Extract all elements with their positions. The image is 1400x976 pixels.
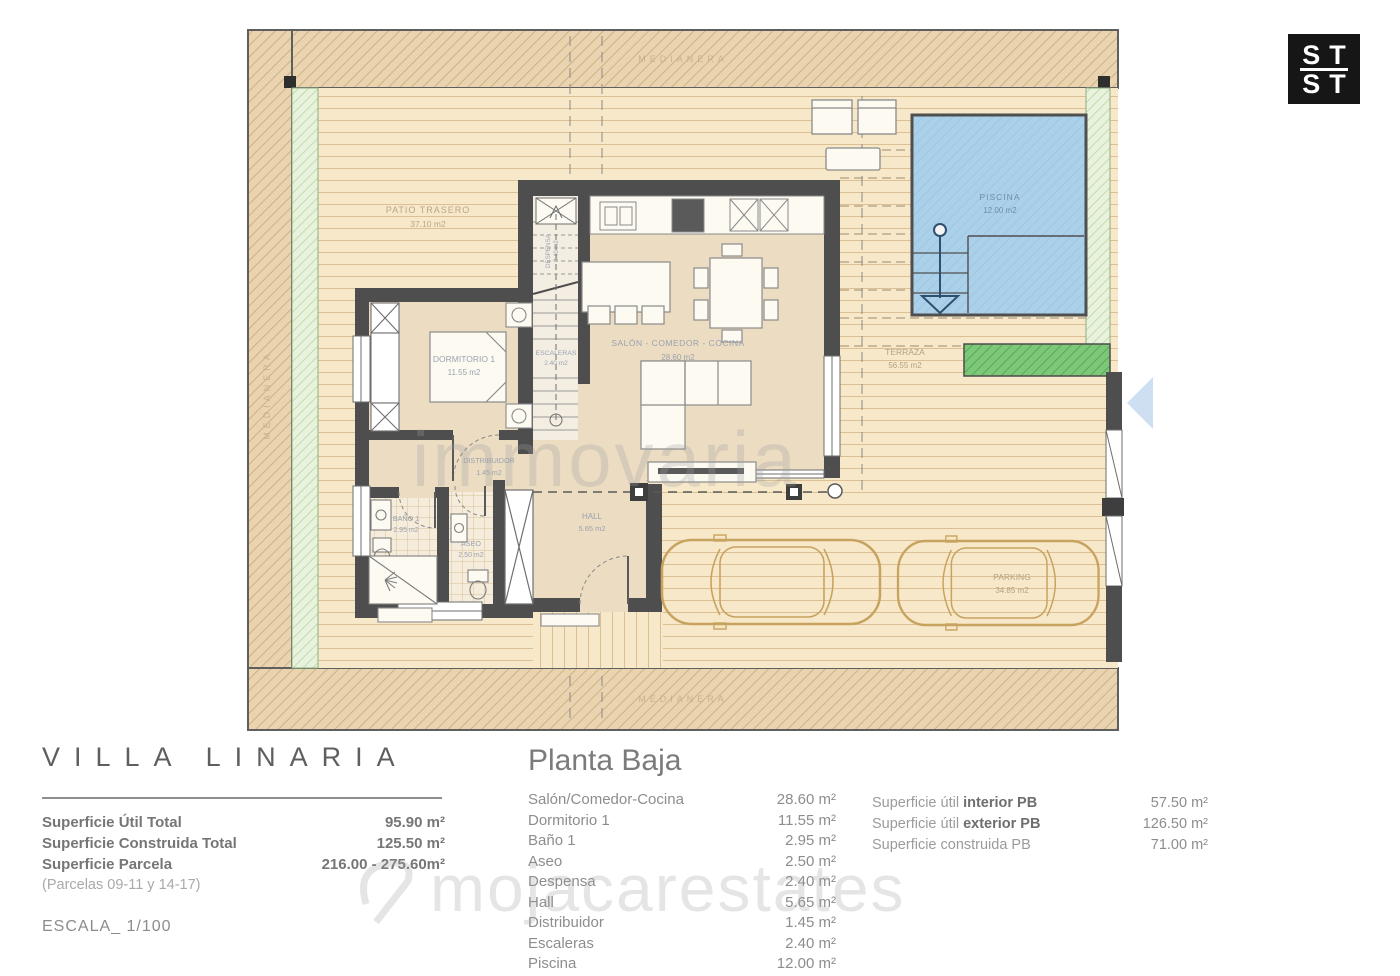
pool: PISCINA 12.00 m2 [912,115,1086,315]
room-area-row: Baño 12.95 m² [528,831,836,852]
room-area-aseo: 2.50 m2 [458,552,483,559]
room-label-bano: BAÑO 1 [393,514,419,523]
kitchen-island [582,262,670,324]
room-area-distribuidor: 1.45 m2 [476,470,501,477]
title-block-rows: Superficie Útil Total95.90 m² Superficie… [42,812,445,895]
room-area-hall: 5.65 m2 [578,524,605,533]
floor-plan-page: PISCINA 12.00 m2 [0,0,1400,976]
room-area-bano: 2.95 m2 [393,527,418,534]
room-area-row: Distribuidor1.45 m² [528,913,836,934]
title-block: VILLA LINARIA [42,742,450,773]
svg-text:MEDIANERA: MEDIANERA [638,54,728,64]
room-label-aseo: ASEO [461,539,481,548]
room-label-piscina: PISCINA [979,192,1020,202]
stove-icon [672,199,704,232]
svg-text:MEDIANERA: MEDIANERA [638,694,728,704]
room-label-parking: PARKING [993,572,1031,582]
room-area-row: Dormitorio 111.55 m² [528,811,836,832]
room-area-escalera: 2.40 m2 [544,360,568,367]
wardrobe [371,303,399,431]
parcelas-note: (Parcelas 09-11 y 14-17) [42,875,445,895]
room-label-despensa: DESPENSA [545,233,552,268]
room-area-row: Aseo2.50 m² [528,852,836,873]
room-area-parking: 34.85 m2 [995,586,1029,595]
right-hedge-strip [1086,88,1110,344]
summary-row: Superficie construida PB 71.00 m² [872,835,1208,856]
room-area-row: Salón/Comedor-Cocina28.60 m² [528,790,836,811]
scale-label: ESCALA_ 1/100 [42,918,172,936]
summary-row: Superficie útil exterior PB 126.50 m² [872,814,1208,835]
planter-green [964,344,1110,376]
hall-closet [505,490,533,604]
surface-row: Superficie Útil Total95.90 m² [42,812,445,833]
surface-row: Superficie Parcela216.00 - 275.60m² [42,854,445,875]
room-label-salon: SALÓN - COMEDOR - COCINA [611,338,744,348]
svg-text:MEDIANERA: MEDIANERA [262,350,272,440]
tv-bench [648,462,756,482]
shower [369,556,437,604]
room-label-dormitorio: DORMITORIO 1 [433,354,495,364]
room-label-escalera: ESCALERAS [536,350,577,357]
room-area-salon: 28.60 m2 [661,353,695,362]
summary-block: Superficie útil interior PB 57.50 m² Sup… [872,793,1208,856]
sink-icon [600,202,636,230]
kitchen-counter [590,196,824,234]
planta-baja-rows: Salón/Comedor-Cocina28.60 m² Dormitorio … [528,790,836,975]
left-hedge-strip [292,88,318,668]
floor-plan: PISCINA 12.00 m2 [0,0,1400,740]
room-area-row: Escaleras2.40 m² [528,934,836,955]
room-label-terraza: TERRAZA [885,347,925,357]
entry-arrow-icon [1127,377,1153,429]
room-area-patio: 37.10 m2 [410,219,446,229]
room-area-dormitorio: 11.55 m2 [448,368,481,377]
surface-row: Superficie Construida Total125.50 m² [42,833,445,854]
room-label-hall: HALL [582,512,603,521]
room-area-row: Hall5.65 m² [528,893,836,914]
room-area-row: Despensa2.40 m² [528,872,836,893]
title-rule [42,797,442,799]
room-area-piscina: 12.00 m2 [983,206,1017,215]
st-logo-top-text: ST [1302,43,1355,67]
planta-baja-heading: Planta Baja [528,744,836,778]
project-title: VILLA LINARIA [42,742,450,773]
st-logo-bottom-text: ST [1302,72,1355,96]
st-logo: ST ST [1288,34,1360,104]
room-area-despensa: 2.40 m2 [554,240,560,262]
bed [430,332,506,402]
room-area-terraza: 56.55 m2 [888,361,922,370]
summary-row: Superficie útil interior PB 57.50 m² [872,793,1208,814]
room-label-patio: PATIO TRASERO [386,205,471,215]
planta-baja-block: Planta Baja Salón/Comedor-Cocina28.60 m²… [528,744,836,975]
room-area-row: Piscina12.00 m² [528,954,836,975]
room-label-distribuidor: DISTRIBUIDOR [463,456,515,465]
